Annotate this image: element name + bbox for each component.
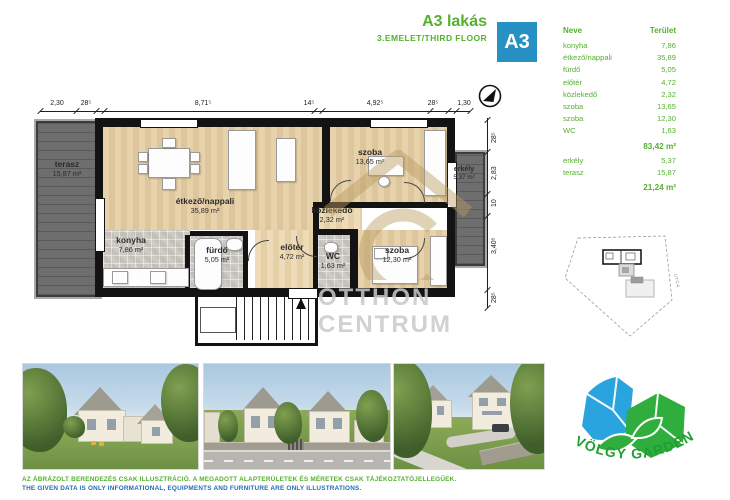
entrance-door [288,288,318,299]
house-front [309,411,350,444]
table-row: szoba13,65 [563,101,676,113]
room-area: 12,30 [657,113,676,125]
room-name: konyha [563,40,588,52]
dimension-label: 28⁵ [71,100,101,107]
room-area: 4,72 [661,77,676,89]
dimension-label: 8,71⁵ [188,100,218,107]
dimension-label: 2,30 [42,100,72,107]
room-area: 35,89 [657,52,676,64]
apartment-badge: A3 [497,22,537,62]
dimension-label: 3,40⁵ [491,237,498,254]
sink [150,271,166,284]
dimension-label: 28⁵ [491,132,498,143]
room-area: 5,37 [661,155,676,167]
site-plan: UTCA [562,222,722,347]
dining-table [148,148,190,178]
sofa [228,130,256,190]
dimension-label: 14⁵ [294,100,324,107]
room-name: étkező/nappali [563,52,612,64]
chair [162,178,176,190]
dimension-tick [467,108,473,114]
car [492,424,509,432]
bush [63,416,85,438]
house-front [78,410,126,442]
dimension-tick [484,305,490,311]
dimension-label: 10 [491,199,498,207]
garden-chair [99,442,104,446]
chair [138,152,148,162]
table-row: terasz15,87 [563,167,676,179]
floor-subtitle: 3.EMELET/THIRD FLOOR [377,33,487,43]
dimension-label: 28⁵ [491,292,498,303]
room-area: 2,32 [661,89,676,101]
room-name: fürdő [563,64,580,76]
watermark-logo-icon [320,150,480,280]
room-area: 5,05 m² [186,256,248,264]
street-label: UTCA [673,273,681,288]
watermark-text: CENTRUM [318,311,452,339]
road-marking [204,460,390,462]
render-photo-3 [393,363,545,470]
room-area: 15,87 m² [38,170,96,178]
table-row: fürdő5,05 [563,64,676,76]
window [140,119,198,128]
room-name: közlekedő [563,89,597,101]
tree [356,390,388,442]
room-area: 13,65 [657,101,676,113]
dimension-label: 2,83 [491,166,498,180]
table-row: konyha7,86 [563,40,676,52]
table-row: étkező/nappali35,89 [563,52,676,64]
table-header: Neve Terület [563,26,676,35]
room-name: szoba [563,101,583,113]
render-photo-2 [203,363,391,470]
disclaimer-hu: AZ ÁBRÁZOLT BERENDEZÉS CSAK ILLUSZTRÁCIÓ… [22,476,456,483]
room-name: WC [563,125,576,137]
table-row: WC1,63 [563,125,676,137]
watermark-text: OTTHON [318,284,431,312]
table-row: közlekedő2,32 [563,89,676,101]
chair [138,164,148,174]
indoor-total: 83,42 m² [563,142,676,151]
stair-landing [200,307,236,333]
logo-blue-house [582,377,633,440]
dimension-label: 1,30 [449,100,479,107]
entrance-arrow-icon [296,298,306,309]
room-name: előtér [563,77,582,89]
table-row: erkély5,37 [563,155,676,167]
room-terrace-floor [36,121,100,297]
dimension-label: 28⁵ [418,100,448,107]
areas-table: Neve Terület konyha7,86 étkező/nappali35… [563,26,676,196]
window [370,119,428,128]
render-photo-1 [22,363,199,470]
room-area: 15,87 [657,167,676,179]
disclaimer-en: THE GIVEN DATA IS ONLY INFORMATIONAL, EQ… [22,485,361,492]
table-row: előtér4,72 [563,77,676,89]
volgy-garden-logo: VÖLGY GARDEN [570,368,700,472]
room-area: 4,72 m² [262,253,322,261]
north-compass-icon [478,84,502,108]
column-area-header: Terület [650,26,676,35]
page-title: A3 lakás [422,13,487,31]
outdoor-total: 21,24 m² [563,183,676,192]
room-area: 5,05 [661,64,676,76]
table-row: szoba12,30 [563,113,676,125]
room-name: erkély [563,155,583,167]
stove [112,271,128,284]
chair [190,152,200,162]
garden-chair [91,441,96,445]
chair [162,138,176,148]
tree [274,402,302,444]
tree [22,368,67,452]
room-name: terasz [563,167,584,179]
room-label: konyha7,86 m² [100,236,162,254]
room-label: fürdő5,05 m² [186,246,248,264]
column-name-header: Neve [563,26,582,35]
room-label: előtér4,72 m² [262,243,322,261]
wall [190,231,248,236]
cabinet [276,138,296,182]
dimension-label: 4,92⁵ [360,100,390,107]
tree [218,410,238,442]
room-name: szoba [563,113,583,125]
room-area: 7,86 [661,40,676,52]
chair [190,164,200,174]
floorplan-sheet: A3 lakás 3.EMELET/THIRD FLOOR A3 Neve Te… [0,0,730,500]
room-area: 1,63 [661,125,676,137]
room-label: étkező/nappali35,89 m² [145,197,265,215]
room-area: 7,86 m² [100,246,162,254]
room-area: 35,89 m² [145,207,265,215]
room-label: terasz15,87 m² [38,160,96,178]
